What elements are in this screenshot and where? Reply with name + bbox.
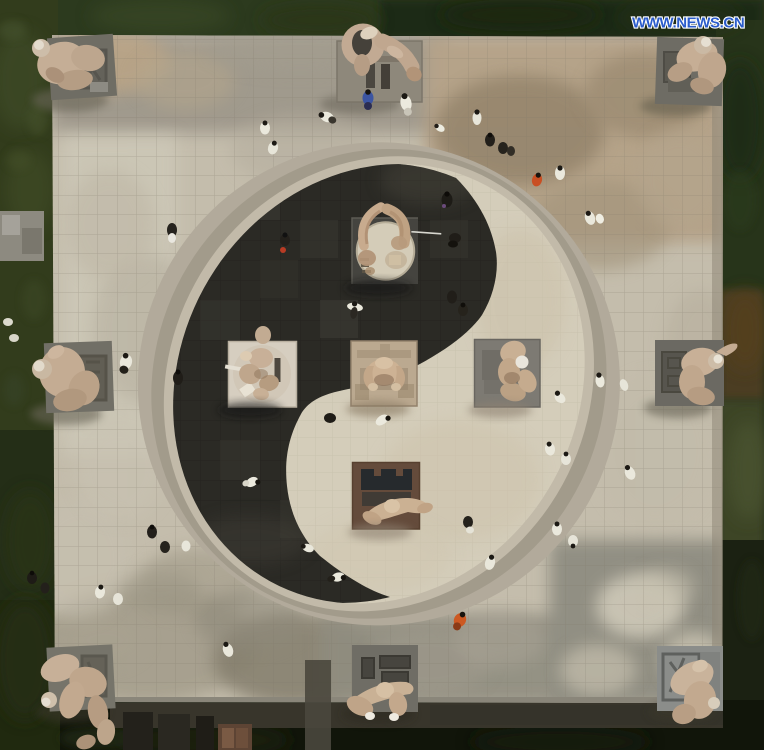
svg-text:WWW.NEWS.CN: WWW.NEWS.CN: [632, 15, 744, 32]
